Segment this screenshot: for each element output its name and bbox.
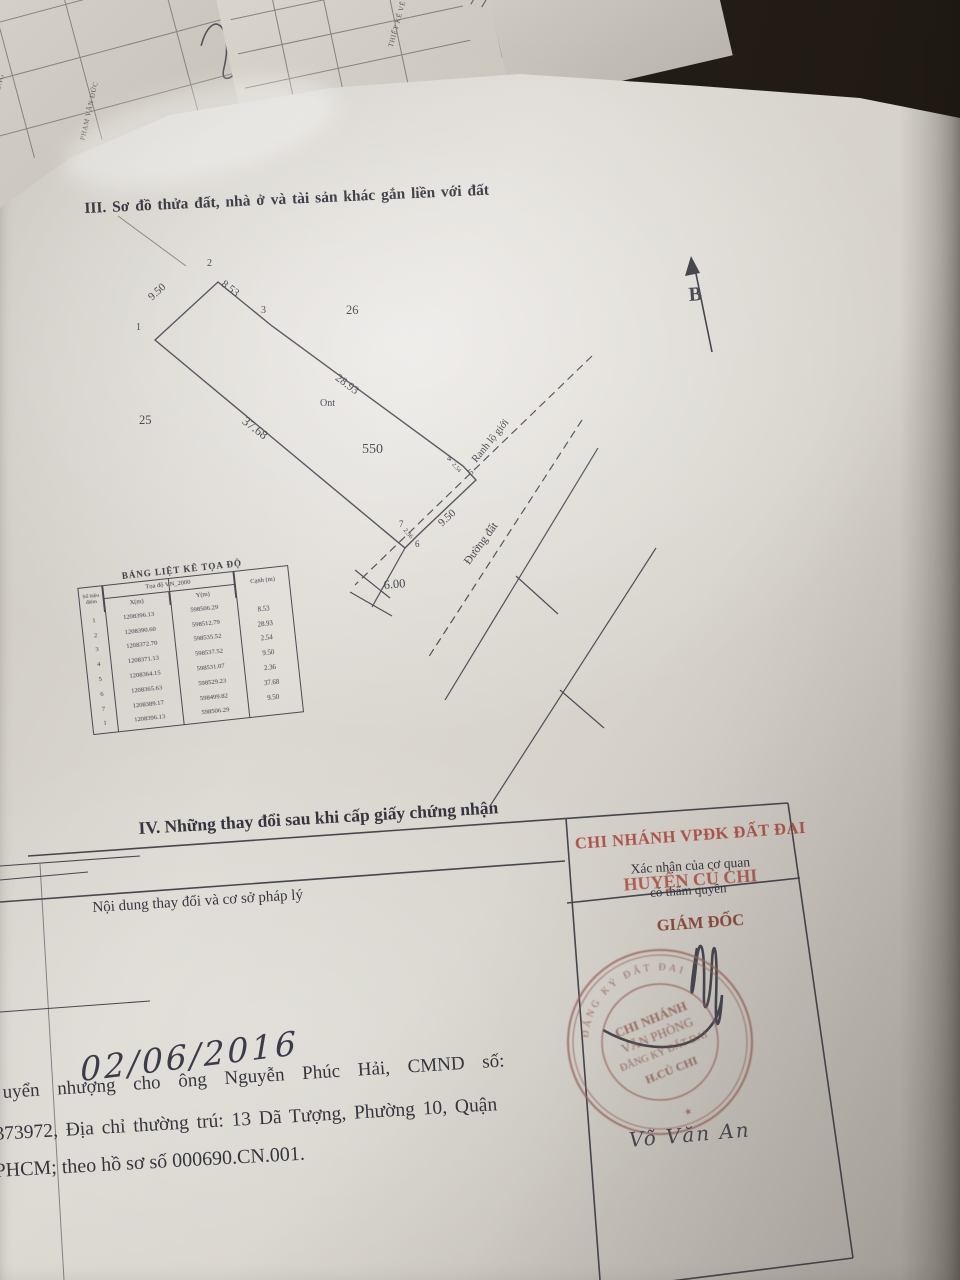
vertex-label-4: 4 (447, 453, 451, 463)
photo-of-land-certificate: { "background_papers": { "left_text_1": … (0, 0, 960, 1280)
parcel-number-label: 550 (362, 442, 383, 458)
round-stamp-star: ★ (682, 1105, 693, 1117)
round-stamp-center-text: CHI NHÁNH VĂN PHÒNG ĐĂNG KÝ ĐẤT ĐAI H.CỦ… (605, 995, 718, 1094)
vertex-label-6: 6 (415, 539, 420, 549)
road-width-label: 6.00 (383, 576, 406, 593)
coord-table-rows: 11208396.13598506.2921208390.60598512.79… (81, 592, 303, 732)
parcel-boundary (155, 282, 476, 548)
coordinate-table: BẢNG LIỆT KÊ TỌA ĐỘ Số hiệu điểm Tọa độ … (76, 553, 304, 735)
vertex-label-3: 3 (261, 305, 266, 316)
vertex-label-7: 7 (399, 519, 404, 529)
coordinate-table-header-point: Số hiệu điểm (78, 586, 105, 614)
north-label: B (688, 283, 703, 307)
adjacent-parcel-26: 26 (346, 303, 359, 318)
vertex-label-1: 1 (136, 322, 141, 333)
paper-crease-line (118, 216, 186, 266)
vertex-label-2: 2 (207, 258, 212, 269)
adjacent-parcel-25: 25 (139, 413, 152, 428)
land-type-label: Ont (320, 398, 335, 409)
